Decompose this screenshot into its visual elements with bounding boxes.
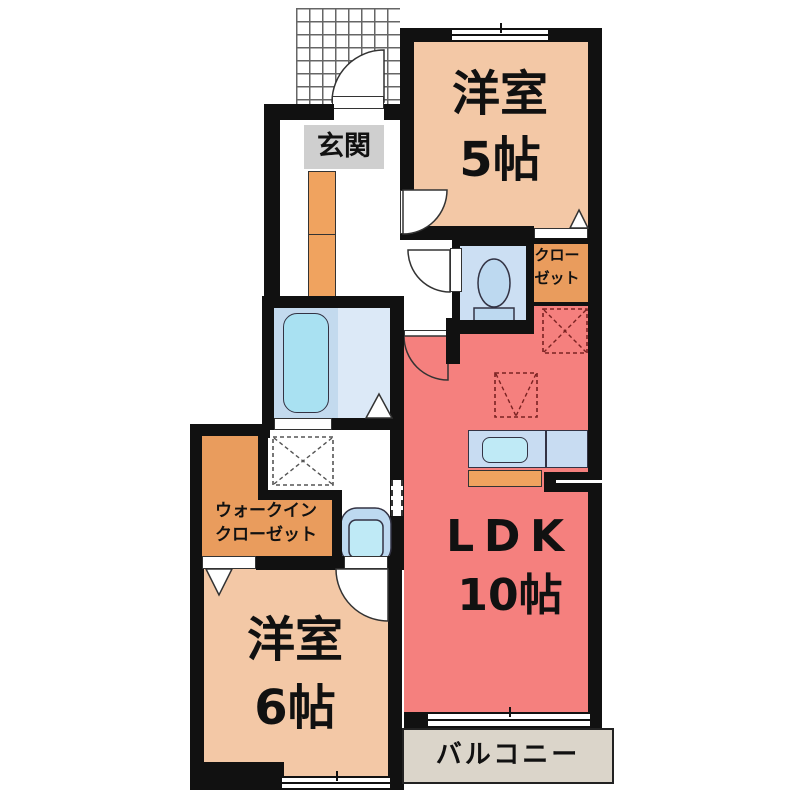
room5-door-arc-icon xyxy=(403,190,447,234)
kitchen-sink xyxy=(482,437,528,463)
wall xyxy=(388,556,402,790)
room6-door-arc-icon xyxy=(336,569,388,621)
wic-label-2: クローゼット xyxy=(196,527,336,544)
entrance-door-arc-icon xyxy=(332,50,384,102)
ldk-door-arc-icon xyxy=(404,336,448,380)
wall xyxy=(400,28,414,200)
bathroom-door-marker-icon xyxy=(366,394,392,418)
room5-name: 洋室 xyxy=(420,70,580,119)
furniture-space-icon xyxy=(494,372,538,418)
wall xyxy=(452,320,536,334)
wic-door-marker-icon xyxy=(206,569,232,595)
counter-hatch xyxy=(556,480,602,483)
wic-label-1: ウォークイン xyxy=(196,503,336,520)
wall xyxy=(390,296,404,570)
balcony-label: バルコニー xyxy=(402,742,614,769)
room6-name: 洋室 xyxy=(215,616,375,665)
entrance-door-leaf xyxy=(332,96,384,109)
kitchen-cabinet xyxy=(468,470,542,487)
bathroom-door-leaf xyxy=(274,418,332,430)
room5-size: 5帖 xyxy=(420,136,580,185)
floor-plan: 玄関 洋室 5帖 クロー ゼット xyxy=(0,0,800,800)
wall xyxy=(262,296,274,430)
ldk-size: 10帖 xyxy=(430,574,590,619)
wall xyxy=(202,762,284,778)
window xyxy=(452,28,548,42)
wall xyxy=(264,104,280,308)
toilet-door-leaf xyxy=(450,248,462,292)
ldk-name: LDK xyxy=(430,515,590,560)
toilet-fixture-icon xyxy=(468,252,520,322)
washing-machine-space-icon xyxy=(272,436,334,486)
kitchen-counter-divider xyxy=(545,431,547,467)
walk-in-closet xyxy=(202,436,258,504)
toilet-door-arc-icon xyxy=(408,250,450,292)
shoe-cabinet xyxy=(308,234,336,298)
wic-door-leaf xyxy=(202,556,256,569)
shoe-cabinet xyxy=(308,171,336,235)
room6-size: 6帖 xyxy=(215,684,375,733)
closet-door-marker-icon xyxy=(570,210,588,228)
wall xyxy=(588,28,602,728)
wall xyxy=(256,556,344,570)
balcony-window xyxy=(428,712,590,728)
wall xyxy=(446,318,460,364)
entrance-label: 玄関 xyxy=(304,133,384,161)
window xyxy=(282,776,390,790)
sliding-door xyxy=(391,480,403,516)
bathtub xyxy=(283,313,329,413)
room6-door-leaf xyxy=(344,556,388,569)
wall xyxy=(262,296,404,308)
refrigerator-space-icon xyxy=(542,308,588,354)
